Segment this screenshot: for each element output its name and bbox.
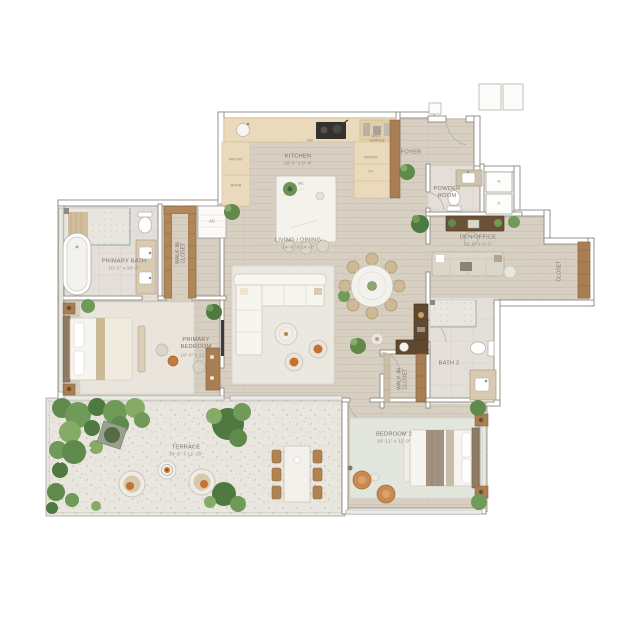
chair-icon <box>193 361 205 373</box>
tv-icon <box>221 320 224 356</box>
floor-lamp-icon <box>348 466 353 471</box>
wardrobe-icon <box>416 354 426 402</box>
oven-label: OV <box>368 170 373 174</box>
plant-icon <box>508 216 520 228</box>
kitchen-label: KITCHEN <box>285 154 311 161</box>
dishwasher-label: DW <box>307 139 313 143</box>
dining-chair-icon <box>393 280 405 292</box>
powder-room-label: POWDER ROOM <box>432 186 462 200</box>
primary-bedroom-dims: 19'-3" x 12'-4" <box>180 353 211 359</box>
dining-set <box>339 253 405 319</box>
terrace-dims: 34'-5" x 12'-10" <box>169 452 203 458</box>
dining-chair-icon <box>366 253 378 265</box>
toilet-icon <box>139 217 152 233</box>
kitchen-sink-icon <box>237 124 250 137</box>
plant-icon <box>470 400 486 416</box>
pantry-right-label: PANTRY <box>364 156 379 160</box>
plant-icon <box>494 219 502 227</box>
ottoman-icon <box>156 344 168 356</box>
primary-bath-label: PRIMARY BATH <box>102 259 146 266</box>
foyer-decor <box>399 164 415 180</box>
ottoman-icon <box>168 356 178 366</box>
closet-wardrobe <box>578 242 590 298</box>
entry-alcove <box>429 84 523 114</box>
side-table-icon <box>504 266 516 278</box>
den-closet-label: CLOSET <box>557 260 563 281</box>
plant-icon <box>448 219 456 227</box>
plant-icon <box>81 299 95 313</box>
bar-sink-icon <box>400 343 409 352</box>
outdoor-chair-icon <box>313 468 322 481</box>
fridge-label: RF/FR <box>231 184 242 188</box>
headboard <box>63 316 70 382</box>
dining-chair-icon <box>339 280 351 292</box>
primary-closet-name: WALK-IN CLOSET <box>175 242 186 264</box>
bedroom2-dims: 16'-11" x 12'-9" <box>377 439 411 445</box>
primary-bath-dims: 10'-1" x 10'-8" <box>108 266 139 272</box>
pantry-cabinet-left <box>222 142 250 206</box>
pantry-left-label: PANTRY <box>229 158 244 162</box>
floor-plan-graphic <box>0 0 640 640</box>
primary-closet-label: WALK-IN CLOSET 8'-4" x 8'-0" <box>175 240 192 266</box>
shower-icon <box>430 300 476 326</box>
den-office-dims: 13'-6" x 9'-1" <box>464 242 493 248</box>
outdoor-chair-icon <box>313 450 322 463</box>
living-dining-label: LIVING / DINING <box>275 238 321 245</box>
headboard <box>472 428 479 488</box>
primary-bedroom-label: PRIMARY BEDROOM <box>175 337 218 351</box>
ac-label: AC <box>209 219 215 224</box>
floor-plan-page: KITCHEN 19'-6" x 8'-4" LIVING / DINING 2… <box>0 0 640 640</box>
bedroom2-label: BEDROOM 2 <box>376 432 412 439</box>
outdoor-chair-icon <box>313 486 322 499</box>
closet2-label: WALK-IN CLOSET <box>397 366 409 392</box>
outdoor-chair-icon <box>272 486 281 499</box>
appliance-garage-label: APPL GARAGE <box>370 135 383 143</box>
living-dining-dims: 24'-8" x 24'-0" <box>282 245 313 251</box>
bath2-label: BATH 2 <box>439 361 460 368</box>
plant-icon <box>471 494 487 510</box>
outdoor-chair-icon <box>272 468 281 481</box>
toilet-icon <box>471 342 486 354</box>
kitchen-dims: 19'-6" x 8'-4" <box>284 161 313 167</box>
terrace-label: TERRACE <box>172 445 201 452</box>
den-office-label: DEN/OFFICE <box>460 235 496 242</box>
fridge-icon <box>390 120 400 198</box>
foyer-label: FOYER <box>401 150 422 157</box>
primary-closet-dims: 8'-4" x 8'-0" <box>188 241 193 264</box>
sofa-icon <box>234 274 326 286</box>
dining-chair-icon <box>366 307 378 319</box>
bench-icon <box>138 326 145 372</box>
dryer-label: D <box>498 202 501 206</box>
washer-label: W <box>497 180 500 184</box>
outdoor-table-icon <box>284 446 310 502</box>
outdoor-chair-icon <box>272 450 281 463</box>
wine-cooler-label: WC <box>298 182 304 186</box>
